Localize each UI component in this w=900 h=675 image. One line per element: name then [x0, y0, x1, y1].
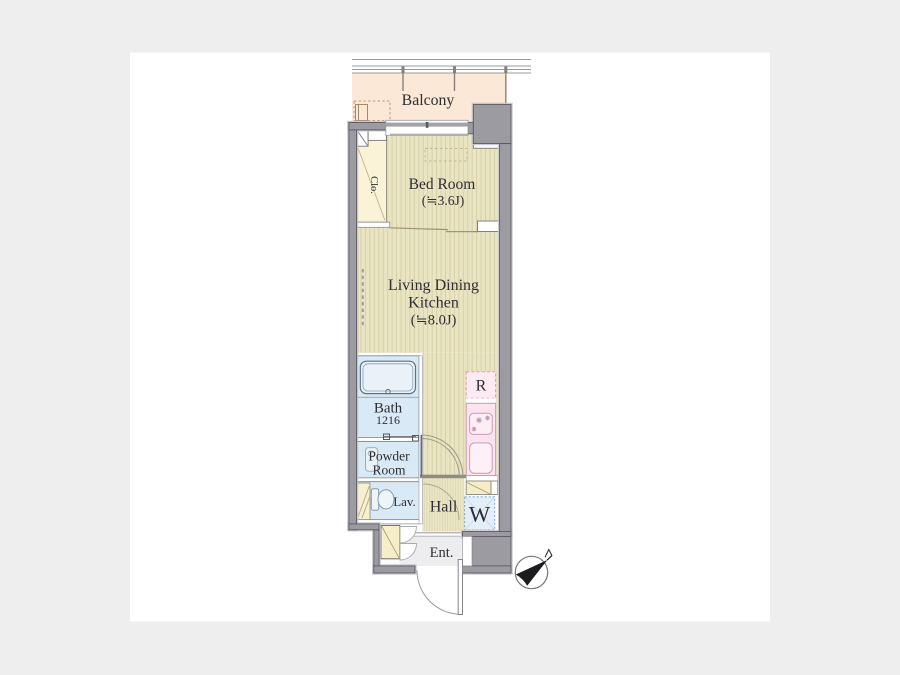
svg-text:Clo.: Clo. [368, 176, 379, 194]
svg-text:Bed Room: Bed Room [409, 176, 476, 193]
svg-text:(≒3.6J): (≒3.6J) [422, 193, 464, 208]
svg-text:Balcony: Balcony [402, 92, 455, 109]
svg-text:Living Dining: Living Dining [388, 277, 479, 294]
svg-text:R: R [476, 378, 487, 395]
svg-text:Lav.: Lav. [393, 494, 416, 509]
svg-text:Kitchen: Kitchen [408, 295, 459, 312]
svg-text:W: W [469, 502, 491, 527]
svg-text:Room: Room [372, 463, 406, 478]
svg-text:1216: 1216 [376, 413, 400, 427]
svg-text:Hall: Hall [430, 499, 458, 516]
svg-text:(≒8.0J): (≒8.0J) [411, 313, 457, 329]
svg-text:Ent.: Ent. [430, 545, 454, 561]
svg-text:Powder: Powder [368, 449, 410, 464]
